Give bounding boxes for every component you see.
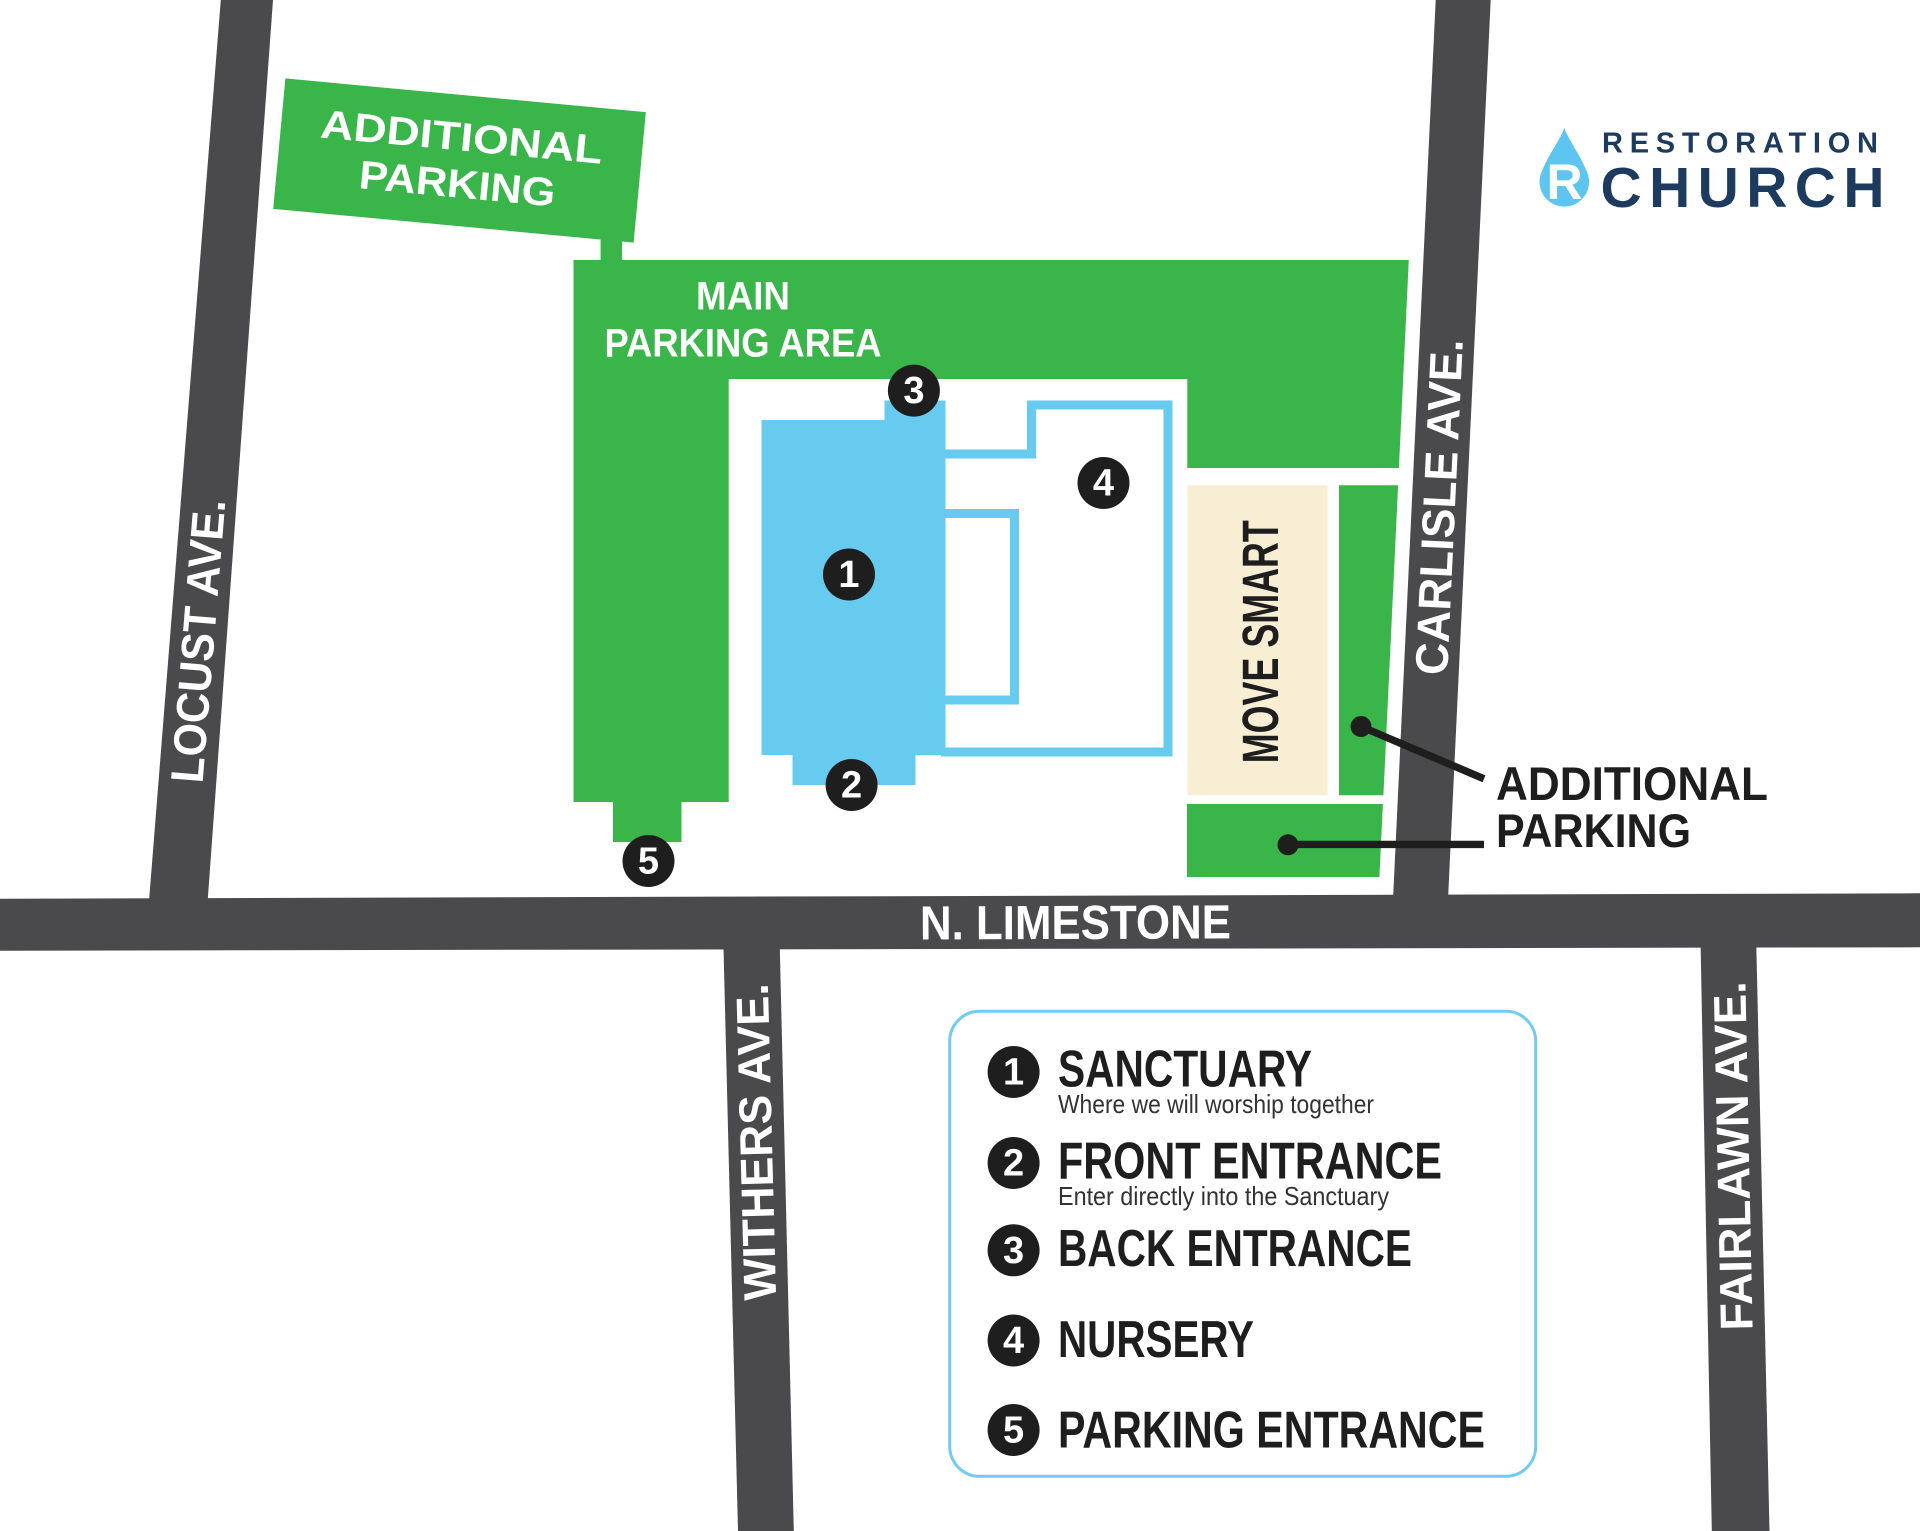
svg-text:R: R	[1546, 154, 1582, 210]
svg-text:5: 5	[638, 841, 659, 883]
svg-text:1: 1	[1003, 1052, 1024, 1094]
svg-text:4: 4	[1093, 463, 1114, 505]
svg-text:N. LIMESTONE: N. LIMESTONE	[920, 896, 1231, 950]
svg-text:5: 5	[1003, 1410, 1024, 1452]
svg-text:1: 1	[838, 554, 859, 596]
svg-text:ADDITIONAL: ADDITIONAL	[1496, 757, 1768, 810]
svg-text:PARKING: PARKING	[1496, 804, 1691, 857]
svg-text:BACK ENTRANCE: BACK ENTRANCE	[1058, 1220, 1412, 1278]
svg-text:4: 4	[1003, 1320, 1024, 1362]
svg-text:RESTORATION: RESTORATION	[1602, 128, 1878, 160]
svg-text:WITHERS AVE.: WITHERS AVE.	[726, 983, 786, 1301]
svg-text:3: 3	[903, 370, 924, 412]
svg-text:Enter directly into the Sanctu: Enter directly into the Sanctuary	[1058, 1181, 1389, 1211]
svg-text:MAIN: MAIN	[696, 274, 790, 318]
svg-text:NURSERY: NURSERY	[1058, 1311, 1254, 1369]
svg-text:3: 3	[1003, 1230, 1024, 1272]
svg-text:Where we will worship together: Where we will worship together	[1058, 1089, 1374, 1119]
svg-text:PARKING ENTRANCE: PARKING ENTRANCE	[1058, 1402, 1485, 1460]
svg-text:2: 2	[1003, 1143, 1024, 1185]
svg-text:PARKING AREA: PARKING AREA	[605, 322, 882, 366]
svg-text:MOVE SMART: MOVE SMART	[1232, 520, 1289, 763]
svg-text:2: 2	[841, 765, 862, 807]
svg-text:FAIRLAWN AVE.: FAIRLAWN AVE.	[1703, 981, 1762, 1331]
